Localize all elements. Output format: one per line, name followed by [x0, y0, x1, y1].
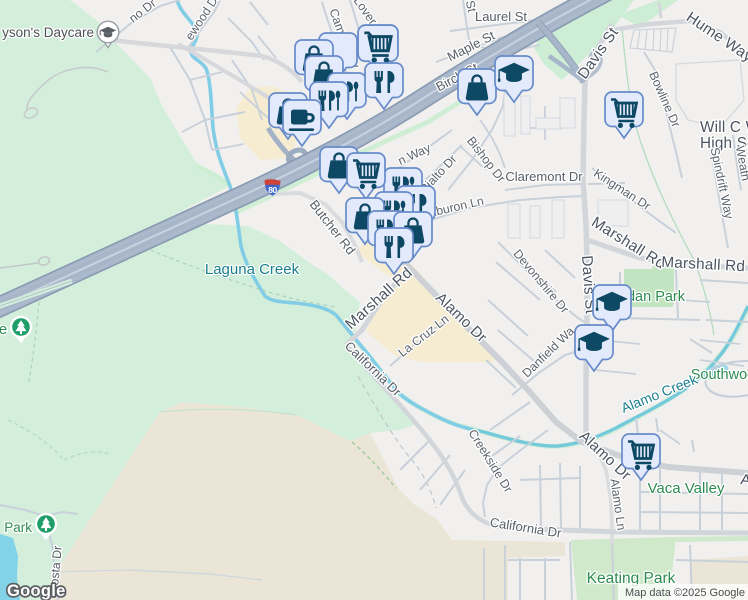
- svg-text:Will C W: Will C W: [700, 119, 748, 136]
- svg-text:Vaca Valley: Vaca Valley: [648, 480, 725, 497]
- svg-text:Google: Google: [7, 582, 66, 600]
- svg-text:e: e: [0, 321, 7, 338]
- svg-text:Map data ©2025 Google: Map data ©2025 Google: [625, 587, 745, 599]
- svg-text:yson's Daycare: yson's Daycare: [2, 25, 94, 40]
- svg-text:Laurel St: Laurel St: [475, 9, 527, 24]
- svg-text:Southwood: Southwood: [691, 367, 748, 383]
- svg-text:Claremont Dr: Claremont Dr: [505, 169, 583, 184]
- svg-text:Park: Park: [4, 520, 32, 535]
- svg-text:dan Park: dan Park: [627, 289, 686, 305]
- svg-text:80: 80: [268, 185, 277, 195]
- svg-text:Laguna Creek: Laguna Creek: [205, 261, 300, 278]
